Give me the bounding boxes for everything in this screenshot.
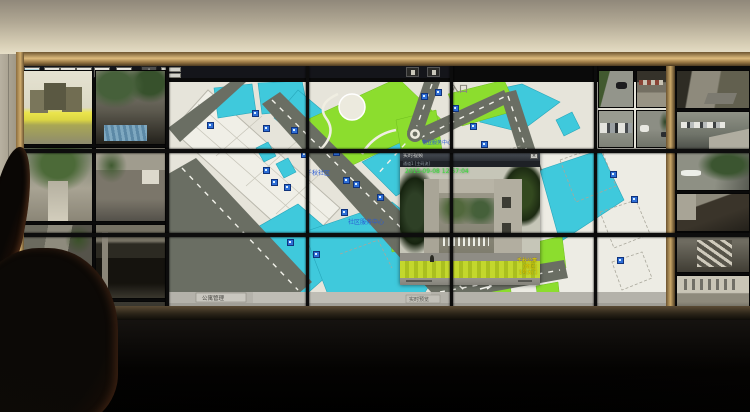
map-status-right-button[interactable]: 实时预览 [406,295,440,303]
camera-marker-icon[interactable] [610,171,617,178]
camera-marker-icon[interactable] [341,209,348,216]
camera-marker-icon[interactable] [452,105,459,112]
right-a-camera-tile-1[interactable] [598,70,634,108]
camera-marker-icon[interactable] [252,110,259,117]
right-b-camera-tile-2[interactable] [676,111,750,150]
right-b-camera-tile-5[interactable] [676,234,750,273]
camera-marker-icon[interactable] [435,89,442,96]
map-label-community: 千秋社区 [306,169,330,177]
monitor-bezel [22,149,750,153]
camera-marker-icon[interactable] [313,251,320,258]
pedestrian [430,255,434,262]
gate-pillar [494,179,522,263]
wall-gold-seam [666,66,675,308]
left-camera-tile-3[interactable] [23,147,93,222]
camera-marker-icon[interactable] [207,122,214,129]
control-room-photo: 入口 千秋社区 社区服务中心 物业服务中心 公寓管理 实时预览 + [0,0,750,412]
camera-marker-icon[interactable] [287,239,294,246]
camera-marker-icon[interactable] [481,141,488,148]
monitor-bezel [306,66,309,308]
person-camera-button-1[interactable] [406,67,419,77]
wall-frame-top [16,52,750,66]
camera-marker-icon[interactable] [617,257,624,264]
person-camera-button-2[interactable] [427,67,440,77]
monitor-bezel [594,66,597,308]
video-timestamp: 2015-09-08 12:57:04 [405,168,469,175]
wall-frame-bottom [16,306,750,320]
monitor-bezel [450,66,453,308]
left-camera-tile-2[interactable] [95,70,166,145]
camera-marker-icon[interactable] [353,181,360,188]
gate-pillar [424,179,439,253]
camera-marker-icon[interactable] [343,177,350,184]
monitor-bezel [166,66,169,308]
right-b-camera-tile-1[interactable] [676,70,750,109]
camera-marker-icon[interactable] [263,167,270,174]
popup-video-feed[interactable]: 2015-09-08 12:57:04 千秋公寓 (南区) 1号大门 [400,167,540,278]
camera-marker-icon[interactable] [470,123,477,130]
map-label-station: 物业服务中心 [422,139,452,146]
video-osd-text: 千秋公寓 (南区) 1号大门 [517,258,537,276]
camera-marker-icon[interactable] [284,184,291,191]
right-b-camera-tile-6[interactable] [676,275,750,308]
left-camera-tile-4[interactable] [95,147,166,222]
right-a-camera-tile-3[interactable] [598,110,634,148]
camera-marker-icon[interactable] [263,125,270,132]
close-icon[interactable]: × [530,153,538,159]
map-status-left-button[interactable]: 公寓管理 [196,293,246,302]
camera-marker-icon[interactable] [421,93,428,100]
video-wall: 入口 千秋社区 社区服务中心 物业服务中心 公寓管理 实时预览 + [22,66,750,308]
camera-marker-icon[interactable] [377,194,384,201]
live-video-popup: 实时视频 × 通道1 [主码流] 2015-09-08 12 [400,152,540,285]
right-b-camera-tile-4[interactable] [676,193,750,232]
map-status-right-label: 实时预览 [409,296,429,303]
camera-marker-icon[interactable] [631,196,638,203]
map-status-left-label: 公寓管理 [202,294,225,302]
camera-marker-icon[interactable] [271,179,278,186]
camera-marker-icon[interactable] [291,127,298,134]
gate-opening [439,193,494,253]
left-camera-tile-1[interactable] [23,70,93,145]
map-label-service-center: 社区服务中心 [348,218,384,226]
popup-title: 实时视频 [400,152,540,161]
popup-footer [400,278,540,285]
monitor-bezel [22,233,750,237]
right-b-camera-tile-3[interactable] [676,152,750,191]
